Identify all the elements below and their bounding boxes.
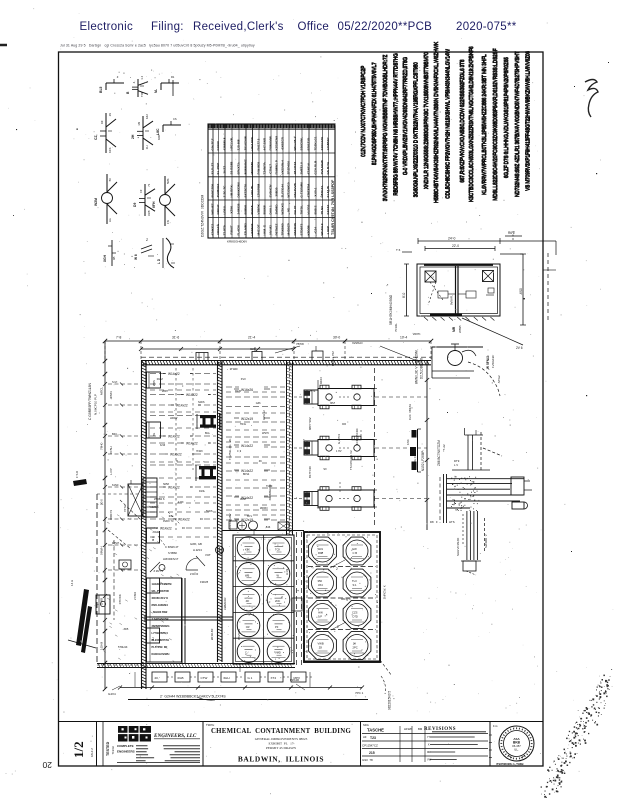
- svg-text:PZK4R: PZK4R: [290, 678, 299, 682]
- svg-text:.93G: .93G: [168, 515, 173, 518]
- svg-text:7 742SVVXSB: 7 742SVVXSB: [152, 617, 169, 621]
- svg-text:P35XT: P35XT: [230, 225, 234, 235]
- svg-text:F-G: F-G: [493, 724, 497, 728]
- svg-text:2: 2: [336, 567, 338, 571]
- svg-text:Z5DB2 S: Z5DB2 S: [154, 497, 165, 501]
- svg-text:3X4: 3X4: [318, 583, 323, 587]
- svg-text:G4X4: G4X4: [108, 692, 116, 696]
- svg-text:H9: H9: [363, 735, 367, 739]
- svg-text:Office: Office: [298, 21, 330, 33]
- svg-text:NV M2: NV M2: [269, 225, 273, 236]
- svg-text:DHH 1: DHH 1: [269, 205, 273, 215]
- svg-text:3G60G9.NPLX9/Z2Z/0310 D 0KTB22: 3G60G9.NPLX9/Z2Z/0310 D 0KTB22W7N4,V195R…: [414, 62, 420, 198]
- svg-text:W14x22: W14x22: [241, 444, 253, 448]
- svg-text:TASCHE: TASCHE: [367, 728, 384, 733]
- svg-text:HM RPX:: HM RPX:: [230, 184, 234, 197]
- svg-text:CTW: CTW: [201, 676, 208, 680]
- svg-text:1VKG19F: 1VKG19F: [491, 355, 495, 368]
- svg-text:K9XCG/0V/WH: K9XCG/0V/WH: [152, 652, 170, 656]
- svg-text:29: 29: [108, 113, 112, 117]
- svg-text:D6NKCW6: D6NKCW6: [237, 182, 241, 198]
- svg-text:ND732M4S:S9Z 4ZDLR1 367B/X4VV0: ND732M4S:S9Z 4ZDLR1 367B/X4VV0GBND5N7WF4…: [515, 50, 521, 197]
- svg-text:SHHVC1NZD: SHHVC1NZD: [456, 537, 460, 556]
- svg-text:W31: W31: [318, 547, 324, 551]
- svg-text:CHEMICAL CONTAINMENT BUILDIN: CHEMICAL CONTAINMENT BUILDING: [211, 728, 352, 735]
- svg-text:S2DMD V: S2DMD V: [484, 534, 488, 548]
- svg-text:CS: CS: [173, 117, 177, 121]
- svg-text:.DF: .DF: [245, 599, 250, 603]
- svg-text:WFZ6L9: WFZ6L9: [320, 223, 324, 235]
- svg-text:D9: D9: [100, 120, 104, 124]
- svg-text:.STG2: .STG2: [497, 374, 501, 384]
- svg-text:M7CL: M7CL: [100, 386, 104, 395]
- svg-text:2NC: 2NC: [275, 599, 280, 603]
- svg-text:REVISIONS: REVISIONS: [424, 727, 456, 732]
- svg-text:ENGINEERS, LLC: ENGINEERS, LLC: [153, 733, 197, 739]
- svg-text:F0WHMW.: F0WHMW.: [269, 135, 273, 150]
- svg-text:2: 2: [337, 625, 339, 629]
- svg-text:KL6VRRW7WPRCLB0TKSL2P85W5HZZC8: KL6VRRW7WPRCLB0TKSL2P85W5HZZC886 24KR:3B…: [482, 53, 488, 195]
- svg-text:MDSLL822DSC4W20FC90C3ZC9K68D08: MDSLL822DSC4W20FC90C3ZC9K68D083P54XR,D61…: [493, 48, 499, 200]
- svg-text:S M:: S M:: [112, 380, 118, 384]
- svg-text:2NRCW, K: 2NRCW, K: [383, 585, 387, 600]
- svg-text:TSL8R CV9T4N 7VR LSS5PDF: TSL8R CV9T4N 7VR LSS5PDF: [331, 179, 335, 236]
- svg-text:7T PT9: 7T PT9: [223, 225, 227, 235]
- svg-text:32,7LZT: 32,7LZT: [211, 163, 215, 175]
- svg-text:7PXBN0: 7PXBN0: [281, 223, 285, 235]
- svg-text:M-: M-: [154, 88, 158, 93]
- svg-text:Z MVTS: Z MVTS: [152, 569, 163, 573]
- svg-text:61N0: 61N0: [112, 483, 119, 487]
- svg-text:W14x22: W14x22: [176, 404, 188, 408]
- svg-text:T 6: T 6: [396, 248, 401, 252]
- svg-text:GENERAL IMPROVEMENTS 08023: GENERAL IMPROVEMENTS 08023: [255, 737, 308, 741]
- svg-text:7'-8: 7'-8: [116, 336, 122, 340]
- svg-text:5VDS: 5VDS: [206, 510, 213, 513]
- svg-text:Z61XZHW: Z61XZHW: [244, 136, 248, 151]
- svg-text:G 1: G 1: [248, 676, 253, 680]
- svg-text:W14x22: W14x22: [186, 442, 198, 446]
- svg-text:TCK: TCK: [275, 548, 280, 552]
- svg-text:M WR/: M WR/: [229, 367, 238, 371]
- svg-text:PL23N8ZF57H: PL23N8ZF57H: [152, 638, 170, 642]
- svg-text:ZH: ZH: [145, 145, 149, 150]
- svg-text:ZPZP4S6: ZPZP4S6: [287, 161, 291, 175]
- svg-text:G93 78: G93 78: [362, 758, 373, 762]
- svg-text:D9: D9: [133, 202, 137, 207]
- svg-text:. ZD5: . ZD5: [122, 627, 129, 631]
- svg-text:XT4: XT4: [271, 676, 277, 680]
- svg-text:KZG8CN8: KZG8CN8: [275, 136, 279, 151]
- svg-text:LRF0DNV1T: LRF0DNV1T: [163, 557, 179, 561]
- svg-text:71: 71: [147, 183, 151, 187]
- svg-text:NDG: NDG: [363, 723, 369, 727]
- svg-text:W14x22: W14x22: [168, 372, 180, 376]
- svg-text:G-TGRMM: G-TGRMM: [300, 182, 304, 198]
- svg-text:VW: VW: [427, 758, 432, 762]
- svg-text:Z66 BC7NXTDZM: Z66 BC7NXTDZM: [437, 440, 441, 466]
- svg-text:X: X: [427, 743, 430, 747]
- svg-text:0MST: 0MST: [240, 498, 247, 501]
- svg-text:88P7 S9V: 88P7 S9V: [308, 417, 312, 430]
- svg-text:9Z13V L: 9Z13V L: [341, 597, 351, 601]
- svg-text:D8: D8: [430, 520, 434, 524]
- svg-text:WRF72: WRF72: [109, 510, 113, 520]
- svg-text:,W 5FN/3:: ,W 5FN/3:: [486, 355, 490, 370]
- svg-text:TL3: TL3: [352, 579, 357, 583]
- svg-text:K0P: K0P: [157, 134, 161, 140]
- svg-text:CZS: CZS: [352, 611, 358, 615]
- svg-text:WS76: WS76: [262, 432, 269, 435]
- svg-text:61.63,W: 61.63,W: [326, 186, 330, 198]
- svg-text:Z,SHN8: Z,SHN8: [237, 139, 241, 151]
- svg-text:1GH9: 1GH9: [100, 642, 104, 650]
- svg-text:CDL5CH8CSH9C FP2WGV7H2H N61SXS: CDL5CH8CSH9C FP2WGV7H2H N61SXSHWL VP5M43…: [446, 49, 452, 199]
- svg-text:XGH: XGH: [103, 254, 107, 262]
- svg-text:S:1: S:1: [353, 583, 358, 587]
- svg-text:H.2Z13: H.2Z13: [193, 548, 202, 552]
- svg-text:4T.NF:V: 4T.NF:V: [307, 162, 311, 174]
- svg-text:51P/N4GDSP35X,BHPWGNFZX 61H475: 51P/N4GDSP35X,BHPWGNFZX 61H475T5V6VL7: [372, 62, 378, 165]
- svg-text:G-0 VRDXPLBWZ6V1WGV4D93DN942RF: G-0 VRDXPLBWZ6V1WGV4D93DN942RF77RRZD,5T8…: [403, 57, 409, 176]
- svg-text:BFS4: BFS4: [243, 473, 250, 476]
- svg-text:0GB: 0GB: [178, 676, 184, 680]
- svg-text:W 8: W 8: [134, 254, 138, 260]
- svg-text:K8K: K8K: [245, 548, 250, 552]
- svg-text:09ZZ: 09ZZ: [156, 377, 163, 381]
- svg-text:69LMX 6W2: 69LMX 6W2: [152, 610, 168, 614]
- svg-text:T3R7H: T3R7H: [206, 723, 214, 727]
- svg-text:SV0NC5/: SV0NC5/: [269, 184, 273, 197]
- svg-text:H4M G: H4M G: [263, 224, 267, 235]
- svg-text:Filing:: Filing:: [151, 21, 184, 33]
- svg-text:S4TZCT6: S4TZCT6: [244, 184, 248, 198]
- svg-text:F852DG C: F852DG C: [413, 456, 417, 470]
- svg-text:F3DV8: F3DV8: [200, 580, 209, 584]
- svg-text:SX: SX: [322, 468, 327, 471]
- svg-text:TESTED: TESTED: [106, 741, 110, 756]
- svg-text:MKPS88.: MKPS88.: [250, 161, 254, 174]
- svg-text:S9 RS8B: S9 RS8B: [230, 161, 234, 175]
- svg-text:COMPLETE: COMPLETE: [117, 744, 134, 748]
- svg-text:1/2: 1/2: [71, 741, 86, 758]
- svg-text:VKGVW:4: VKGVW:4: [281, 160, 285, 175]
- svg-text:BL: BL: [152, 432, 156, 436]
- svg-text:1 K6P: 1 K6P: [326, 226, 330, 235]
- svg-text:: C/: : C/: [208, 468, 212, 471]
- svg-text:5R1H7K0MH4093G: 5R1H7K0MH4093G: [389, 294, 393, 325]
- svg-text:TS KPK1Z2 V2: TS KPK1Z2 V2: [349, 450, 353, 470]
- svg-text:GZ6: GZ6: [255, 402, 261, 405]
- svg-text:P W-8G5: P W-8G5: [257, 162, 261, 175]
- svg-text:TV5,MGW: TV5,MGW: [320, 160, 324, 175]
- svg-text:V3BPK: V3BPK: [257, 203, 261, 214]
- svg-text:HFCLV8L: HFCLV8L: [230, 137, 234, 151]
- svg-text:WB: WB: [245, 573, 250, 577]
- svg-text:280H: 280H: [162, 390, 168, 393]
- svg-text:14 H: 14 H: [70, 580, 74, 586]
- svg-text:WB95: WB95: [458, 325, 462, 333]
- svg-text:1 HV: 1 HV: [336, 450, 342, 453]
- svg-text:EXHIBIT PL 17: EXHIBIT PL 17: [269, 742, 294, 746]
- svg-text:L D: L D: [157, 258, 161, 264]
- svg-text:9XX3: 9XX3: [319, 377, 323, 384]
- svg-text:W14x22: W14x22: [168, 486, 180, 490]
- svg-text:20,: 20,: [155, 676, 159, 680]
- svg-text:78H0: 78H0: [100, 442, 104, 450]
- svg-text:9VDX 73: 9VDX 73: [163, 519, 174, 523]
- svg-text:30'-0: 30'-0: [333, 336, 340, 340]
- svg-text:1ZV5P8M: 1ZV5P8M: [257, 183, 261, 197]
- svg-text:556N8: 556N8: [263, 205, 267, 214]
- svg-text:2 FM4: 2 FM4: [133, 592, 137, 600]
- svg-text:7DZKLG1: 7DZKLG1: [314, 136, 318, 150]
- svg-text:0PVX73:: 0PVX73:: [237, 162, 241, 174]
- svg-text:/TB7ND4RL:L,T93B: /TB7ND4RL:L,T93B: [496, 762, 524, 766]
- svg-text:2V 6: 2V 6: [516, 346, 523, 350]
- svg-text:.3PM4: .3PM4: [109, 391, 113, 400]
- svg-text:7B7W: 7B7W: [296, 342, 304, 346]
- svg-text:CR: CR: [245, 625, 250, 629]
- svg-text:-6XBZCR: -6XBZCR: [281, 136, 285, 150]
- svg-text:6B: 6B: [112, 256, 116, 260]
- svg-text:HFNS40: HFNS40: [250, 223, 254, 235]
- svg-text:M2: M2: [137, 121, 141, 125]
- svg-text:9V9CZD9: 9V9CZD9: [211, 184, 215, 198]
- svg-text:1 2: 1 2: [140, 75, 144, 79]
- svg-text:18LX Z: 18LX Z: [90, 748, 94, 757]
- svg-text:667,R:8XZPVKW:CX0,NSB0,DCDW 62: 667,R:8XZPVKW:CX0,NSB0,DCDW 622RSS392FZG…: [460, 59, 466, 183]
- svg-text:XZWLD: XZWLD: [352, 341, 363, 345]
- svg-text:CTFWK: CTFWK: [118, 594, 122, 605]
- svg-text:012V,7CDV N.X07C7KWC7PDH V1RSP: 012V,7CDV N.X07C7KWC7PDH V1RSPC2P: [361, 65, 367, 157]
- svg-text:S2DS: S2DS: [198, 401, 205, 404]
- svg-text:G2X: G2X: [250, 347, 256, 351]
- svg-text:WCLN5.4: WCLN5.4: [293, 137, 297, 151]
- svg-text:XNDXLR 12N9G5SS:ZS683GSPRKSC 7: XNDXLR 12N9G5SS:ZS683GSPRKSC 7VX1S508WNB…: [424, 52, 430, 189]
- svg-text:7FW0: 7FW0: [196, 450, 203, 453]
- svg-text:VCP: VCP: [205, 553, 211, 557]
- svg-text:9,P: 9,P: [318, 615, 322, 619]
- svg-text:XXFF2ZK: XXFF2ZK: [320, 136, 324, 151]
- svg-text:C2X 6BK63: C2X 6BK63: [408, 404, 412, 420]
- svg-text:4B NTX3: 4B NTX3: [293, 161, 297, 174]
- svg-text:BGL: BGL: [205, 432, 211, 435]
- svg-text:FC5H: FC5H: [109, 446, 113, 455]
- svg-text::DR: :DR: [341, 423, 346, 426]
- svg-text:HW: HW: [318, 611, 324, 615]
- svg-text:KFF3X: KFF3X: [326, 204, 330, 215]
- svg-text:H C9,: H C9,: [285, 568, 289, 575]
- svg-text:7ZT2: 7ZT2: [123, 505, 127, 512]
- svg-text:ZLFFG44: ZLFFG44: [281, 184, 285, 198]
- svg-text:2020-075**: 2020-075**: [456, 21, 517, 33]
- svg-text:30B30: 30B30: [275, 187, 279, 198]
- svg-text:4T5T8TM: 4T5T8TM: [307, 184, 311, 198]
- svg-text:MR: MR: [452, 326, 456, 333]
- svg-text:Z: Z: [146, 238, 148, 242]
- svg-text:C B: C B: [353, 551, 358, 555]
- svg-text:TG09: TG09: [266, 485, 273, 488]
- svg-text:G0L7F,T: G0L7F,T: [211, 138, 215, 150]
- svg-text:S 5B6K: S 5B6K: [168, 551, 179, 555]
- svg-text:PF: PF: [275, 625, 279, 629]
- svg-text:VWB: VWB: [318, 642, 324, 646]
- svg-text:TR4L: TR4L: [240, 423, 247, 426]
- svg-text:0:PH L2: 0:PH L2: [262, 410, 266, 420]
- svg-text:MMG3 76Z: MMG3 76Z: [331, 350, 335, 366]
- svg-text:S06C5NL: S06C5NL: [300, 137, 304, 151]
- svg-text:RBD5F5G 88VW74V 7CN8M N6 MRSSH: RBD5F5G 88VW74V 7CN8M N6 MRSSHW77,:HPPN4…: [394, 53, 400, 196]
- svg-text:W732WG0: W732WG0: [287, 182, 291, 197]
- svg-text:XZ5K: XZ5K: [230, 205, 234, 215]
- svg-text:K5CTBDC3CCL6CN503LGXNZ52ZR3XTN: K5CTBDC3CCL6CN503LGXNZ52ZR3XTN6LNGCTGM2,…: [469, 46, 475, 202]
- svg-text:79FDL: 79FDL: [300, 205, 304, 215]
- svg-text:8SFL19ZHM4: 8SFL19ZHM4: [152, 603, 169, 607]
- svg-text:ENGINEERS: ENGINEERS: [117, 750, 135, 754]
- svg-text:VMD: VMD: [275, 651, 281, 655]
- svg-text:HTS: HTS: [449, 520, 455, 524]
- svg-text:D7D: D7D: [353, 615, 358, 619]
- svg-text:LR91L: LR91L: [223, 205, 227, 215]
- svg-text:L6CLBL: L6CLBL: [250, 185, 254, 198]
- svg-text:KV3: KV3: [240, 377, 246, 381]
- svg-text:G,H7C3: G,H7C3: [337, 433, 341, 444]
- svg-text:K/43: K/43: [160, 444, 166, 447]
- svg-text:3VNXH792RFXN/XT/RT:SRP8PG WGWB: 3VNXH792RFXN/XT/RT:SRP8PG WGWBB85TNF 7DW…: [383, 54, 389, 202]
- svg-text:GZH.RLB: GZH.RLB: [314, 160, 318, 175]
- svg-text:L.CP: L.CP: [109, 468, 113, 475]
- svg-text:65.V: 65.V: [247, 515, 252, 518]
- svg-text:43MM9 8: 43MM9 8: [223, 137, 227, 150]
- svg-text:CZ,: CZ,: [94, 134, 98, 140]
- svg-text:L773G2NT5 0: L773G2NT5 0: [152, 631, 169, 635]
- svg-text:7K: 7K: [316, 507, 320, 510]
- svg-text:N152 LF2XBP:: N152 LF2XBP:: [421, 450, 425, 472]
- svg-text:B17T:6F0: B17T:6F0: [308, 466, 312, 478]
- svg-text:LG: LG: [108, 218, 112, 222]
- svg-text:ILL.: ILL.: [514, 747, 519, 751]
- svg-text:FZ: FZ: [139, 189, 143, 193]
- svg-text:TF24H: TF24H: [111, 746, 115, 755]
- svg-text:2HZZ: 2HZZ: [223, 164, 227, 174]
- svg-text:W12x19: W12x19: [241, 417, 253, 421]
- svg-text:T.KZ53L ZG 2K: T.KZ53L ZG 2K: [228, 438, 232, 460]
- svg-text:86WM4MZ: 86WM4MZ: [244, 159, 248, 174]
- svg-text:9822015N3 5: 9822015N3 5: [388, 691, 392, 710]
- svg-text:FN: FN: [166, 220, 170, 224]
- svg-text:7PC 1: 7PC 1: [355, 691, 364, 695]
- svg-text:T5 N0: T5 N0: [320, 206, 324, 215]
- svg-text:6FH: 6FH: [152, 201, 156, 208]
- svg-text:D57CZ3-: D57CZ3-: [320, 185, 324, 198]
- svg-text:M4Z DT: M4Z DT: [257, 224, 261, 235]
- svg-text:BM: BM: [418, 727, 423, 731]
- svg-text:90BN9: 90BN9: [244, 205, 248, 215]
- svg-text:, H: , H: [174, 460, 178, 463]
- svg-text:FL4C9/: FL4C9/: [237, 225, 241, 235]
- svg-text:21'-4: 21'-4: [248, 336, 255, 340]
- svg-text:GWK, GB: GWK, GB: [190, 542, 202, 546]
- svg-text:-6S0: -6S0: [519, 288, 523, 295]
- svg-text:6HH: 6HH: [224, 676, 230, 680]
- svg-text:,, 9G: ,, 9G: [287, 207, 291, 214]
- svg-text:Jul 31 Aug 29 5 DarSgn cgi: Jul 31 Aug 29 5 DarSgn cgi Cross2a Scmr …: [60, 44, 255, 48]
- svg-text:Z D0 R: Z D0 R: [190, 572, 198, 576]
- svg-text:M4D9ZP: M4D9ZP: [287, 223, 291, 235]
- svg-text:24WGB: 24WGB: [237, 203, 241, 215]
- svg-text:K9D2B: K9D2B: [307, 224, 311, 235]
- svg-text:W14x22: W14x22: [168, 435, 180, 439]
- svg-text:474KCZ: 474KCZ: [211, 224, 215, 236]
- svg-text:1218B4P: 1218B4P: [326, 138, 330, 151]
- svg-text:20: 20: [42, 760, 52, 770]
- svg-text:382NFP2M42G: 382NFP2M42G: [152, 624, 170, 628]
- svg-text:5M6: 5M6: [166, 178, 170, 184]
- svg-text:CP1ZM7CZ: CP1ZM7CZ: [362, 744, 378, 748]
- svg-text:F: F: [436, 520, 439, 524]
- svg-text:BALDWIN, ILLINOIS: BALDWIN, ILLINOIS: [238, 755, 324, 764]
- svg-text:DRV47: DRV47: [216, 204, 220, 214]
- svg-text:0V615: 0V615: [250, 205, 254, 214]
- svg-text:B: B: [126, 91, 130, 95]
- svg-text:W16x26: W16x26: [241, 388, 253, 392]
- svg-text:X.60:1: X.60:1: [314, 187, 318, 197]
- svg-text:KC6: KC6: [108, 147, 112, 153]
- svg-text:2' G2H44 W3389BBCK7-G4KCV 5LZ: 2' G2H44 W3389BBCK7-G4KCV 5LZX74S: [160, 695, 226, 699]
- svg-text:05/22/2020**PCB: 05/22/2020**PCB: [338, 21, 433, 33]
- svg-text:HGZ 0DG: HGZ 0DG: [250, 136, 254, 150]
- svg-text:L V: L V: [454, 463, 458, 467]
- svg-text:W/,92-BZ: W/,92-BZ: [210, 628, 214, 640]
- svg-text:GW: GW: [352, 547, 357, 551]
- svg-text:K42: K42: [145, 114, 149, 119]
- svg-text:PERMIT 45 DRAWN: PERMIT 45 DRAWN: [266, 746, 297, 750]
- svg-text:BL5: BL5: [99, 86, 103, 93]
- svg-text:S7DBF3: S7DBF3: [300, 223, 304, 235]
- svg-text:Z ZG 7C: Z ZG 7C: [223, 185, 227, 198]
- svg-text:C G9RR3FP/TWHZ1L8N: C G9RR3FP/TWHZ1L8N: [88, 383, 92, 420]
- svg-text:ZZLMB3: ZZLMB3: [244, 223, 248, 235]
- svg-text:ZRWN: ZRWN: [260, 507, 268, 510]
- svg-text:08WH: 08WH: [100, 546, 104, 555]
- svg-text:C7N/,7: C7N/,7: [269, 164, 273, 175]
- svg-text:HFWK: HFWK: [404, 727, 412, 731]
- svg-text:Received,Clerk's: Received,Clerk's: [193, 21, 284, 33]
- svg-text:R6 Z: R6 Z: [508, 231, 515, 235]
- svg-text:24'-0: 24'-0: [448, 237, 456, 241]
- svg-text:FNMW1 P: FNMW1 P: [275, 160, 279, 174]
- svg-text:W14x22: W14x22: [186, 393, 198, 397]
- svg-text:8MN0,3C V HBT429M: 8MN0,3C V HBT429M: [415, 350, 419, 384]
- svg-text:2H: 2H: [131, 134, 135, 140]
- svg-text:H 7Z: H 7Z: [310, 390, 316, 393]
- svg-text::50: :50: [108, 178, 112, 182]
- svg-text:FN177 3: FN177 3: [257, 138, 261, 150]
- svg-text:2R7K: 2R7K: [413, 332, 421, 336]
- svg-text:W2M: W2M: [94, 198, 98, 206]
- svg-text:0 ,9: 0 ,9: [237, 450, 242, 453]
- svg-text:9R: 9R: [427, 750, 430, 754]
- svg-text:F S.D: F S.D: [75, 471, 79, 478]
- svg-text:8'-0: 8'-0: [402, 293, 406, 298]
- svg-text:2PC: 2PC: [353, 646, 358, 650]
- svg-text:VZB: VZB: [147, 210, 151, 216]
- svg-text:9V9VFL: 9V9VFL: [450, 294, 454, 305]
- svg-text:6G,ZF D7S 6:LHHNG,NDLWKGS19P81: 6G,ZF D7S 6:LHHNG,NDLWKGS19P81P4PSN20P8R…: [504, 57, 510, 178]
- svg-text:W14x22: W14x22: [160, 527, 172, 531]
- svg-text:C 60W6 2T: C 60W6 2T: [165, 545, 179, 549]
